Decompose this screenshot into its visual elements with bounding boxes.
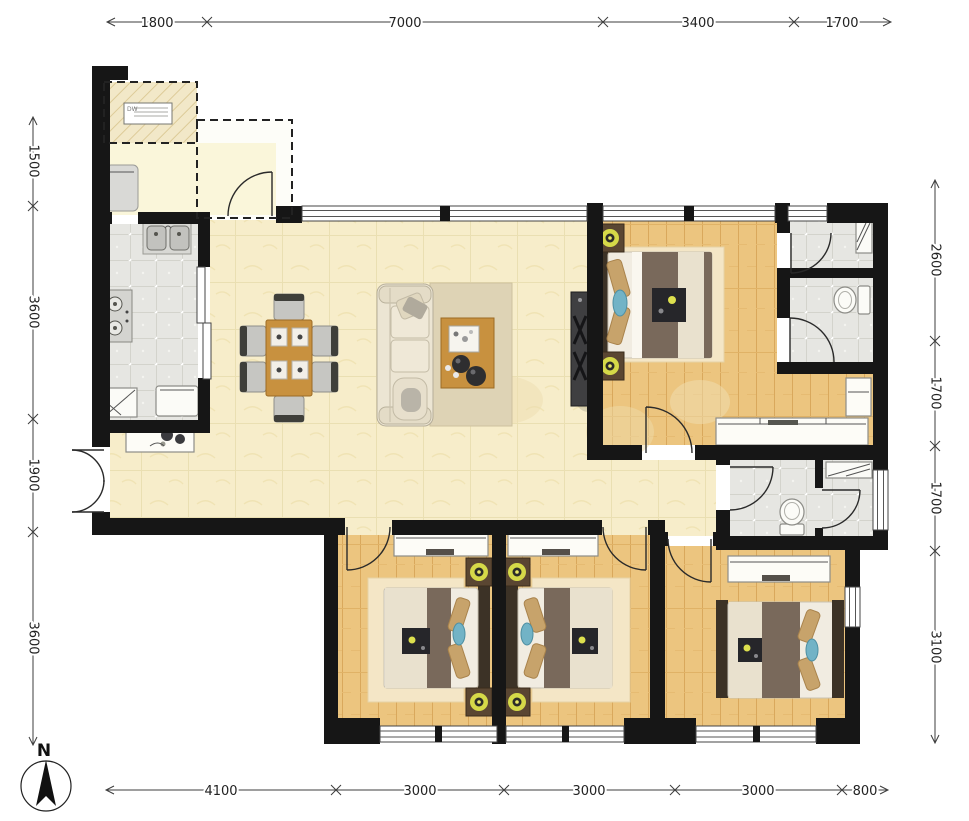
bedroom4-furniture xyxy=(716,556,844,698)
tv-console xyxy=(571,292,589,406)
kitchen-sink xyxy=(143,222,191,254)
master-wardrobe xyxy=(716,418,868,445)
master-shelf xyxy=(846,378,871,416)
toilet-mid xyxy=(780,499,804,535)
bedroom3-window xyxy=(506,726,624,742)
ac-unit: DW xyxy=(124,103,172,124)
dim-label: 3600 xyxy=(26,621,41,654)
entry-water-heater xyxy=(106,165,138,211)
floor-plan-page: DW xyxy=(0,0,969,817)
coffee-table xyxy=(441,318,494,388)
dim-label: 1700 xyxy=(928,376,943,409)
dim-label: 1500 xyxy=(26,144,41,177)
dim-label: 1900 xyxy=(26,458,41,491)
bathroom2-side-window xyxy=(873,470,888,530)
bedroom4-side-window xyxy=(845,587,860,627)
dim-label: 2600 xyxy=(928,243,943,276)
living-window xyxy=(302,206,587,221)
dim-label: 7000 xyxy=(388,16,421,31)
dim-label: 3000 xyxy=(572,784,605,799)
bedroom4-wardrobe xyxy=(728,556,830,582)
master-bed xyxy=(598,250,712,360)
bathroom1-window xyxy=(788,206,827,221)
dim-label: 800 xyxy=(853,784,878,799)
sofa xyxy=(377,284,433,426)
floor-plan-canvas: DW xyxy=(0,0,969,817)
bedroom2-wardrobe xyxy=(394,532,488,556)
shower-bench xyxy=(826,462,872,478)
dim-label: 3600 xyxy=(26,295,41,328)
dim-label: 1700 xyxy=(825,16,858,31)
shower-panel xyxy=(856,220,872,253)
bedroom3-wardrobe xyxy=(508,532,598,556)
kitchen-fridge xyxy=(156,386,198,416)
dim-label: 3000 xyxy=(741,784,774,799)
entry-double-door xyxy=(72,447,110,512)
toilet-top xyxy=(834,286,870,314)
dim-label: 3000 xyxy=(403,784,436,799)
dim-label: 3400 xyxy=(681,16,714,31)
north-arrow-icon xyxy=(36,760,56,806)
bedroom2-window xyxy=(380,726,497,742)
dim-label: 3100 xyxy=(928,630,943,663)
bedroom2-bed xyxy=(384,586,490,690)
north-label: N xyxy=(37,741,51,761)
bedroom3-bed xyxy=(506,586,612,690)
dim-label: 1700 xyxy=(928,481,943,514)
dim-label: 1800 xyxy=(140,16,173,31)
north-compass: N xyxy=(21,741,71,811)
ac-unit-label: DW xyxy=(127,106,138,113)
bedroom4-bed xyxy=(716,600,844,698)
bedroom4-window xyxy=(696,726,816,742)
kitchen-sliding-door xyxy=(197,267,211,379)
master-window xyxy=(603,206,775,221)
dim-top xyxy=(107,17,891,27)
dim-label: 4100 xyxy=(204,784,237,799)
